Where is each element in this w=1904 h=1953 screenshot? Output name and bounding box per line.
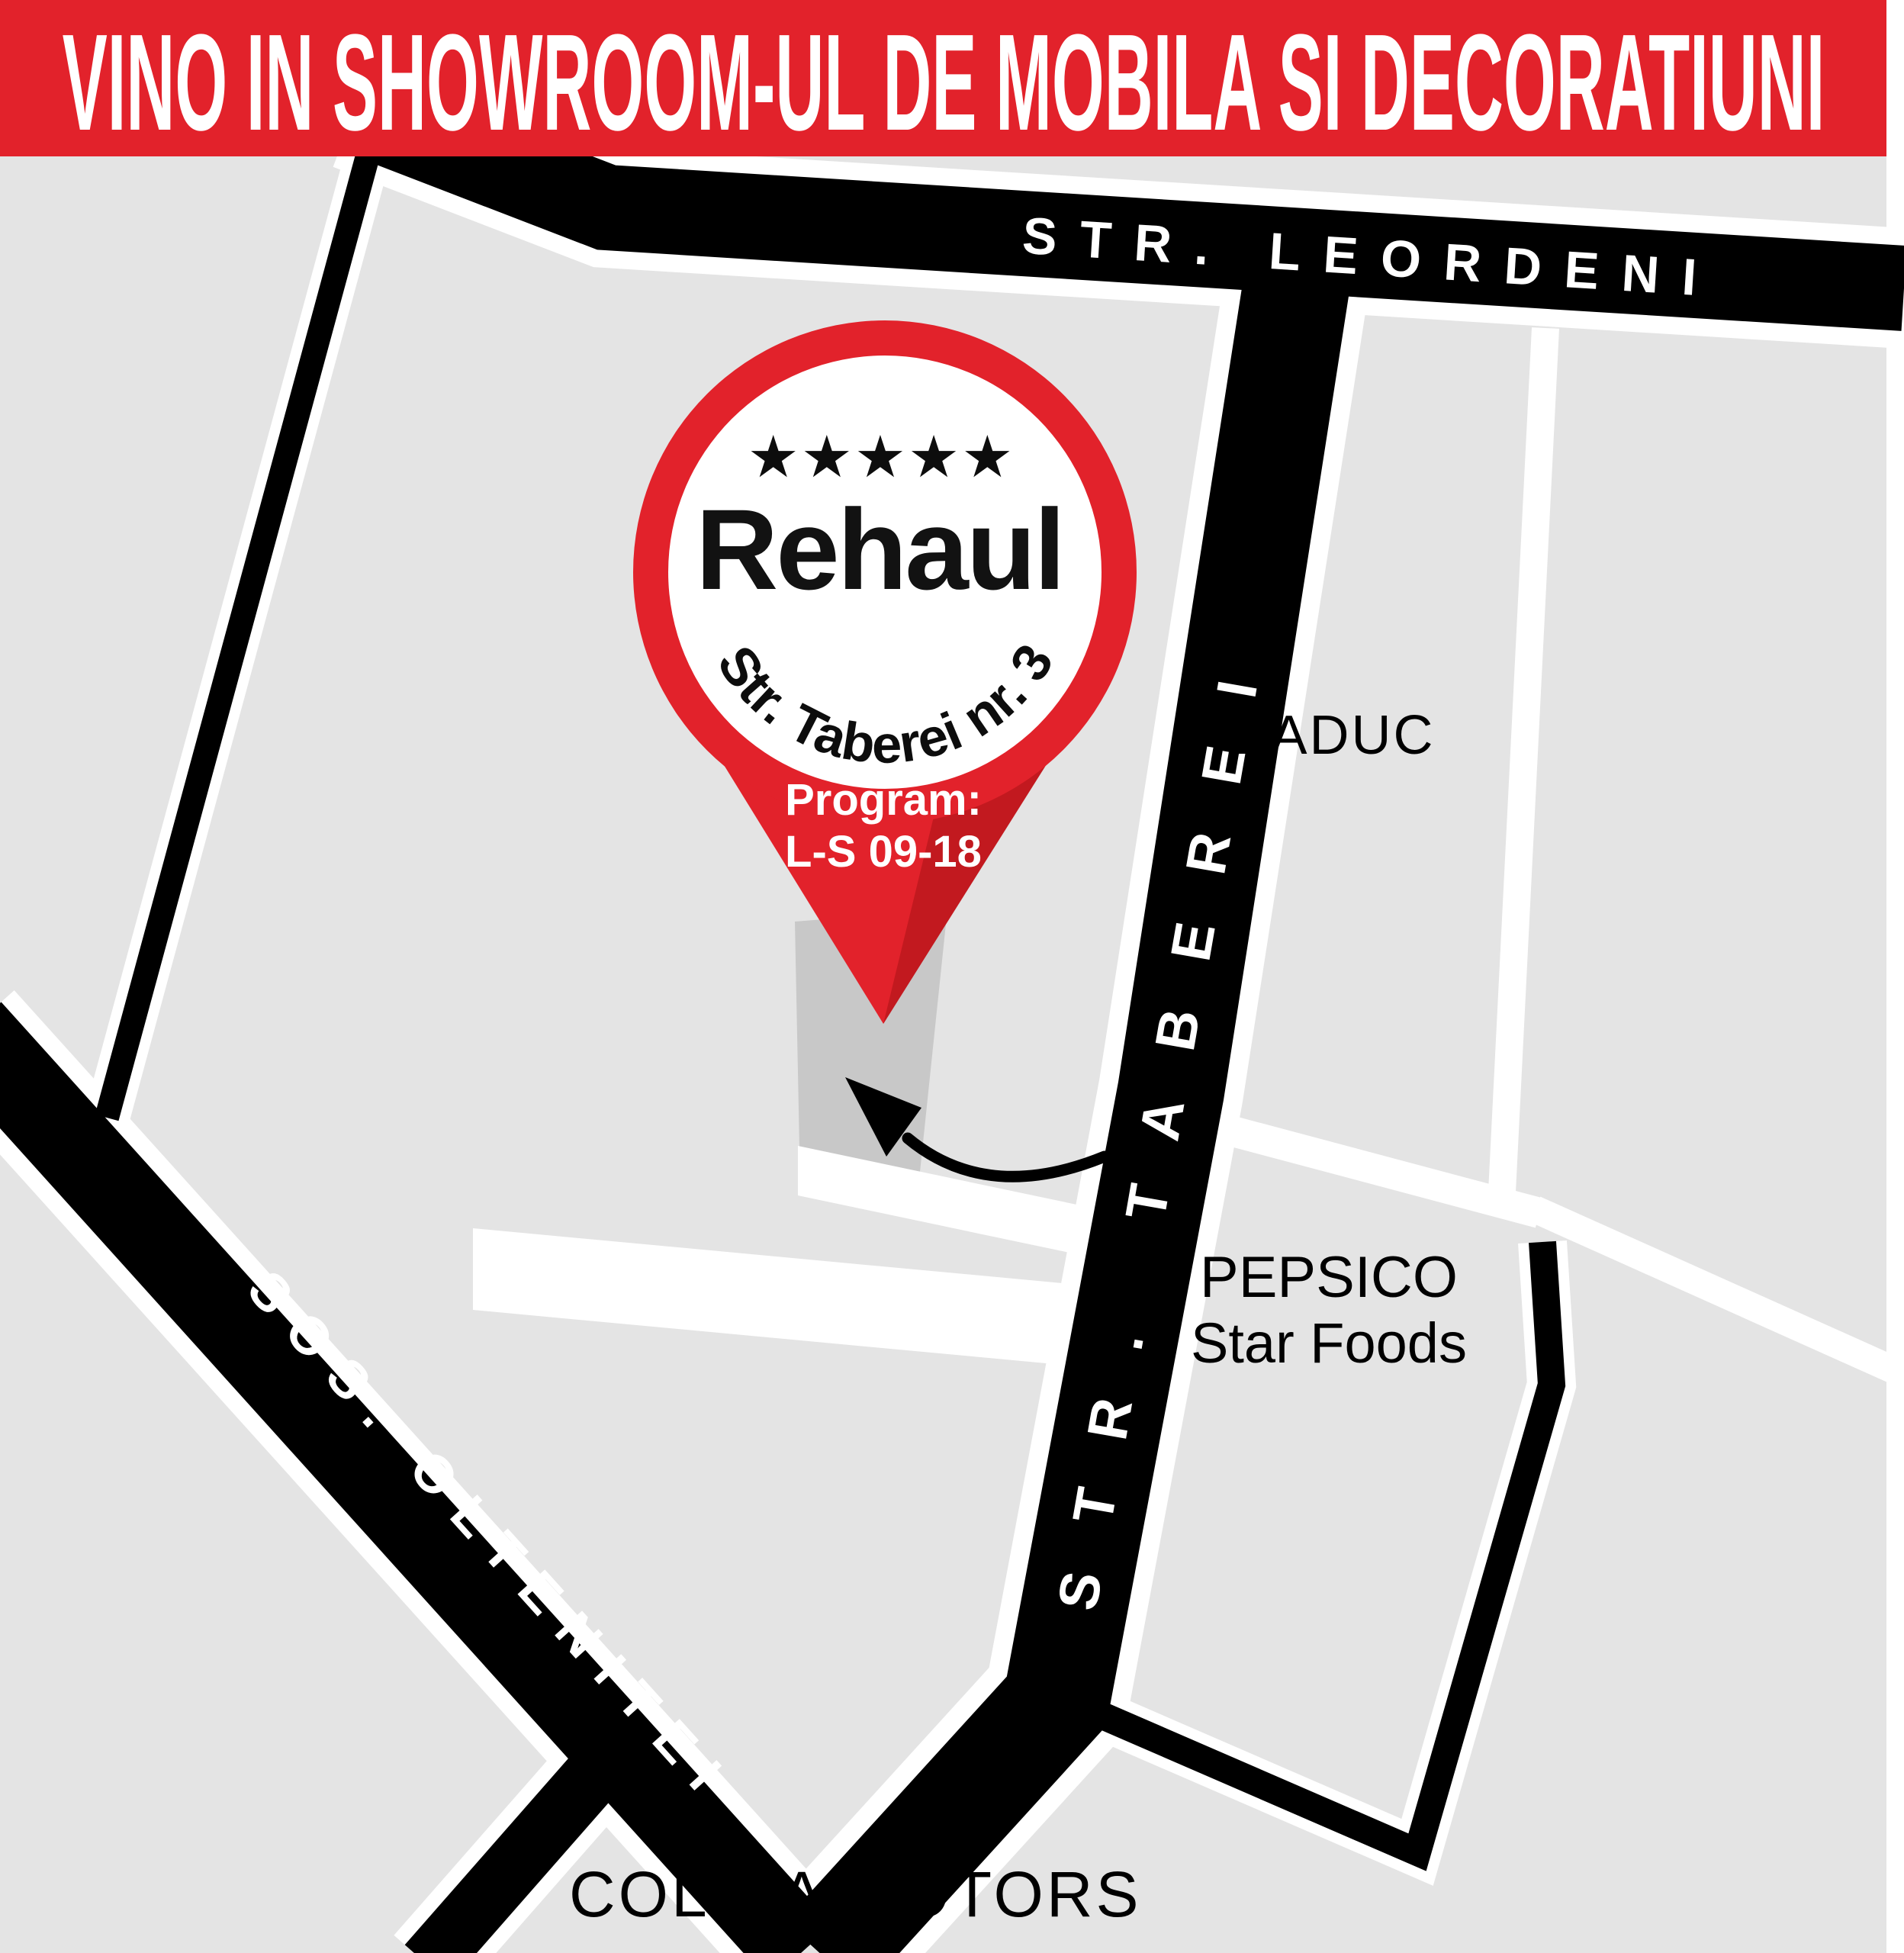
map-poster: VINO IN SHOWROOM-UL DE MOBILA SI DECORAT…: [0, 0, 1904, 1953]
pin-program-hours: L-S 09-18: [785, 827, 982, 877]
pin-rating-stars: ★★★★★: [748, 423, 1015, 491]
place-label-star-foods: Star Foods: [1191, 1311, 1467, 1375]
banner-title: VINO IN SHOWROOM-UL DE MOBILA SI DECORAT…: [63, 7, 1825, 159]
pin-brand-logo: Rehaul: [696, 485, 1063, 613]
place-label-pepsico: PEPSICO: [1200, 1245, 1458, 1310]
place-label-baduc: BADUC: [1231, 705, 1435, 766]
place-label-colina-motors: COLINA MOTORS: [569, 1858, 1142, 1930]
map-canvas: VINO IN SHOWROOM-UL DE MOBILA SI DECORAT…: [0, 0, 1904, 1953]
pin-program-label: Program:: [785, 775, 982, 825]
